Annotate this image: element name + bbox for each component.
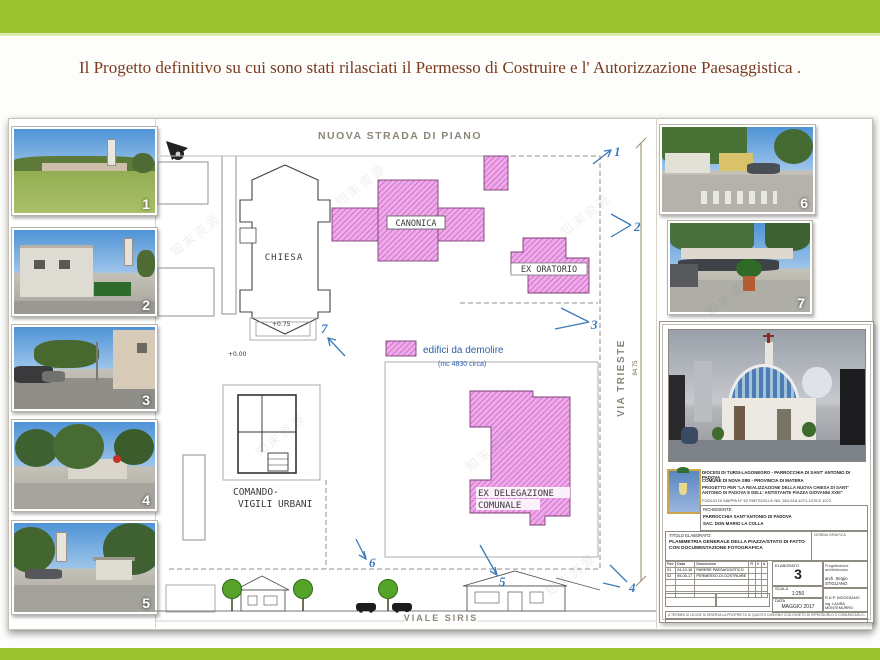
street-label-top: NUOVA STRADA DI PIANO [318, 130, 482, 142]
potted-plant [736, 259, 763, 279]
slide: Il Progetto definitivo su cui sono stati… [0, 0, 880, 660]
church-render [668, 329, 866, 462]
comando-label-1: COMANDO- [233, 487, 279, 498]
titleblock-comune-line: COMUNE DI NOVA SIRI - PROVINCIA DI MATER… [702, 478, 866, 483]
photo-3: 3 [11, 324, 158, 412]
rup-role: R.U.P. DIOCESANO [825, 596, 865, 600]
legend-label: edifici da demolire [423, 345, 504, 356]
titleblock-foglio-line: FOGLIO DI MAPPA N° 62 PARTICELLE NN. 264… [702, 498, 866, 503]
delegazione-label-1: EX DELEGAZIONE [478, 489, 554, 499]
photo-number: 6 [800, 195, 808, 211]
legend-note: (mc 4830 circa) [438, 361, 486, 368]
photo-number: 3 [142, 392, 150, 408]
photo-6-image: 6 [662, 127, 813, 212]
view-marker-3: 3 [590, 317, 598, 332]
parked-cars [25, 569, 62, 579]
slide-title: Il Progetto definitivo su cui sono stati… [0, 58, 880, 78]
street-label-right: VIA TRIESTE [616, 339, 627, 417]
north-arrow-icon [166, 141, 188, 160]
photo-7: 7 [667, 220, 813, 315]
rup-name: ing. LAURA MONTEMURRO [825, 602, 865, 610]
photo-1: 1 [11, 126, 158, 216]
photo-number: 7 [797, 295, 805, 311]
view-marker-6: 6 [369, 555, 376, 570]
cross-icon [767, 333, 770, 343]
view-marker-2: 2 [633, 219, 641, 234]
photo-7-image: 7 [670, 223, 810, 312]
bottom-accent-bar [0, 648, 880, 660]
stop-sign [113, 455, 121, 463]
legend-swatch [386, 341, 416, 356]
empty-strip [665, 618, 868, 623]
elaborato-number: 3 [773, 566, 823, 582]
canonica-label: CANONICA [396, 219, 437, 229]
ex-oratorio-label: EX ORATORIO [521, 265, 577, 275]
photo-2: 2 [11, 227, 158, 317]
title-block: DIOCESI DI TURSI-LAGONEGRO - PARROCCHIA … [659, 321, 874, 623]
richiedente-line2: SAC. DON MARIO LA COLLA [703, 521, 764, 526]
view-marker-7: 7 [321, 321, 328, 336]
photo-number: 5 [142, 595, 150, 611]
crosswalk [701, 191, 777, 204]
photo-number: 1 [142, 196, 150, 212]
titolo-label: TITOLO ELABORATO: [669, 533, 712, 538]
site-plan: NUOVA STRADA DI PIANO VIA TRIESTE [155, 120, 656, 626]
view-marker-4: 4 [628, 580, 636, 595]
car [747, 163, 780, 174]
street-label-bottom: VIALE SIRIS [404, 613, 479, 623]
chiesa-label: CHIESA [265, 253, 304, 263]
architect-box: Progettazione architettonica arch. Sergi… [822, 561, 868, 589]
signature-cell [715, 593, 770, 607]
bell-tower [124, 238, 133, 265]
view-marker-1: 1 [614, 144, 621, 159]
comando-label-2: VIGILI URBANI [238, 499, 312, 510]
column-divider-right [656, 118, 657, 628]
chiesa-outline [240, 165, 330, 334]
data-value: MAGGIO 2017 [773, 604, 823, 610]
photo-number: 4 [142, 492, 150, 508]
titolo-box: TITOLO ELABORATO: NORMA GRAFICA PLANIMET… [665, 531, 868, 561]
photo-1-image: 1 [14, 129, 155, 213]
architect-role: Progettazione architettonica [825, 564, 865, 572]
demolition-small-building [484, 156, 508, 190]
diocese-crest [667, 469, 701, 514]
chiesa-chapel [240, 228, 256, 243]
richiedente-label: RICHIEDENTE: [703, 507, 733, 512]
photo-6: 6 [659, 124, 816, 215]
dimension-value: 84.75 [633, 360, 639, 376]
building [113, 330, 155, 389]
norma-label: NORMA GRAFICA [814, 533, 846, 537]
footer-note: A TERMINI DI LEGGE SI RISERVA LA PROPRIE… [668, 613, 865, 617]
photo-4-image: 4 [14, 422, 155, 509]
delegazione-label-2: COMUNALE [478, 501, 521, 511]
dumpsters [94, 282, 131, 296]
comando-building [238, 395, 296, 473]
kiosk [96, 560, 133, 580]
bell-tower [56, 532, 66, 562]
photo-2-image: 2 [14, 230, 155, 314]
data-label: DATA [775, 598, 785, 603]
elevation-chiesa: +0.75 [272, 321, 291, 328]
white-building [20, 248, 93, 297]
titleblock-progetto-line: PROGETTO PER "LA REALIZZAZIONE DELLA NUO… [702, 485, 866, 495]
architect-name: arch. Sergio STIGLIANO [825, 576, 865, 586]
rup-box: R.U.P. DIOCESANO ing. LAURA MONTEMURRO [822, 587, 868, 613]
signature-cell [665, 593, 717, 607]
photo-5: 5 [11, 520, 158, 615]
photo-4: 4 [11, 419, 158, 512]
photo-number: 2 [142, 297, 150, 313]
top-accent-bar [0, 0, 880, 36]
elaborato-box: ELABORATO 3 [772, 561, 824, 587]
richiedente-box: RICHIEDENTE: PARROCCHIA SANT'ANTONIO DI … [700, 505, 868, 531]
people [681, 427, 699, 444]
view-marker-5: 5 [499, 574, 506, 589]
richiedente-line1: PARROCCHIA SANT'ANTONIO DI PADOVA [703, 514, 792, 519]
photo-3-image: 3 [14, 327, 155, 409]
photo-5-image: 5 [14, 523, 155, 612]
elevation-sagrato: +0.00 [228, 351, 247, 358]
titolo-value: PLANIMETRIA GENERALE DELLA PIAZZA/STATO … [669, 540, 807, 552]
bell-tower [107, 139, 116, 166]
dimension-line: 84.75 [633, 138, 646, 586]
